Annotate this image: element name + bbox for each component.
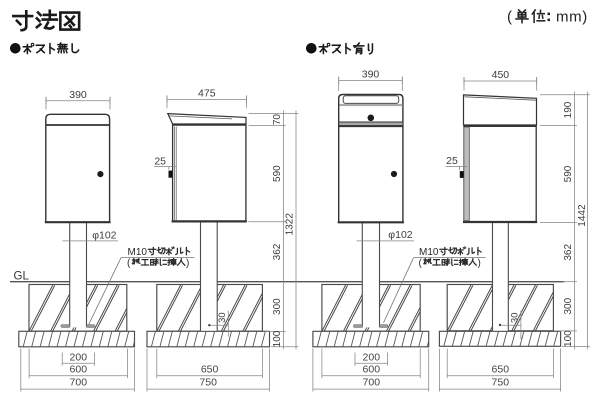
svg-text:750: 750 xyxy=(492,376,510,388)
svg-text:φ102: φ102 xyxy=(388,229,412,241)
svg-text:700: 700 xyxy=(363,376,381,388)
svg-text:25: 25 xyxy=(154,155,166,167)
svg-text:590: 590 xyxy=(563,165,574,182)
svg-text:100: 100 xyxy=(563,330,574,347)
svg-text:390: 390 xyxy=(69,89,87,101)
svg-text:362: 362 xyxy=(272,243,283,260)
svg-text:25: 25 xyxy=(446,155,458,167)
svg-text:450: 450 xyxy=(492,69,510,81)
svg-text:590: 590 xyxy=(272,165,283,182)
svg-text:1322: 1322 xyxy=(284,213,295,236)
svg-text:φ102: φ102 xyxy=(92,229,116,241)
svg-text:M10: M10 xyxy=(128,247,148,258)
svg-text:390: 390 xyxy=(362,69,380,81)
svg-text:650: 650 xyxy=(492,364,510,376)
svg-text:(: ( xyxy=(507,9,512,26)
svg-text:): ) xyxy=(186,258,189,269)
svg-text:190: 190 xyxy=(563,101,574,118)
svg-text:200: 200 xyxy=(363,351,381,363)
svg-text:M10: M10 xyxy=(419,247,439,258)
svg-text:600: 600 xyxy=(70,364,88,376)
svg-text:300: 300 xyxy=(563,297,574,314)
svg-text:362: 362 xyxy=(563,244,574,261)
svg-text:1442: 1442 xyxy=(577,204,588,227)
svg-text:750: 750 xyxy=(199,376,217,388)
svg-text:600: 600 xyxy=(363,364,381,376)
svg-text:475: 475 xyxy=(198,88,216,100)
svg-text:200: 200 xyxy=(70,351,88,363)
svg-text:650: 650 xyxy=(201,364,219,376)
svg-text:100: 100 xyxy=(272,330,283,347)
svg-text:mm): mm) xyxy=(556,9,588,26)
svg-text:300: 300 xyxy=(272,298,283,315)
svg-text:30: 30 xyxy=(217,312,228,323)
svg-text:GL: GL xyxy=(14,271,30,283)
svg-text:30: 30 xyxy=(509,313,520,324)
svg-text:): ) xyxy=(478,258,481,269)
svg-text:70: 70 xyxy=(272,114,283,126)
svg-text:700: 700 xyxy=(70,376,88,388)
